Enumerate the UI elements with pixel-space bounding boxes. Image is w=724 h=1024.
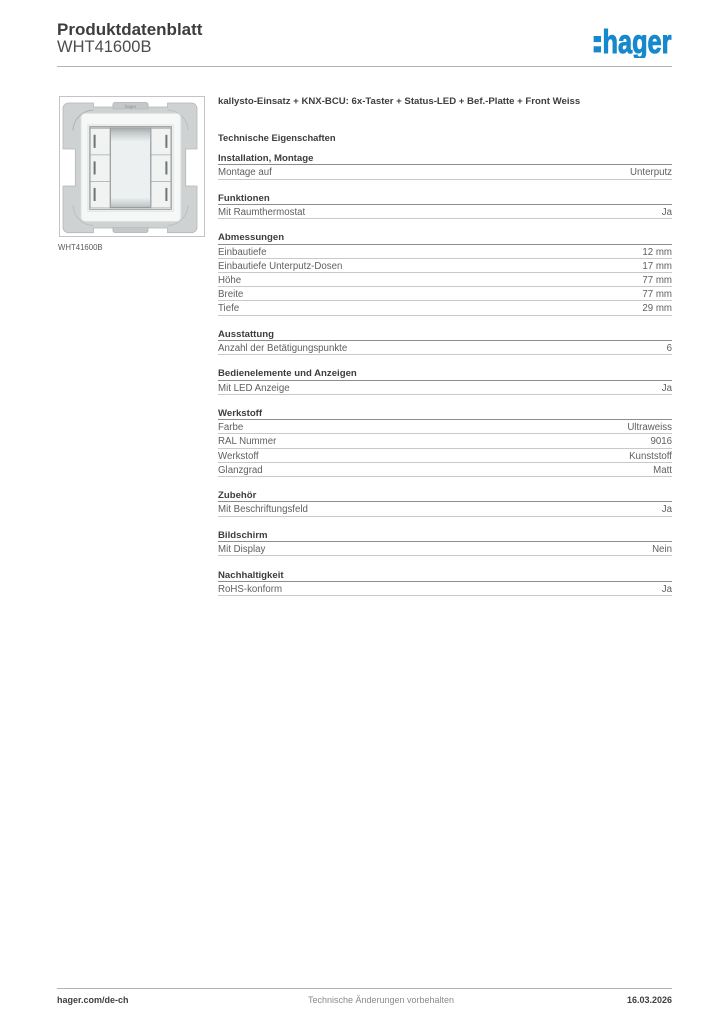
svg-text:hager: hager: [125, 104, 137, 109]
svg-text:hager: hager: [603, 24, 672, 58]
